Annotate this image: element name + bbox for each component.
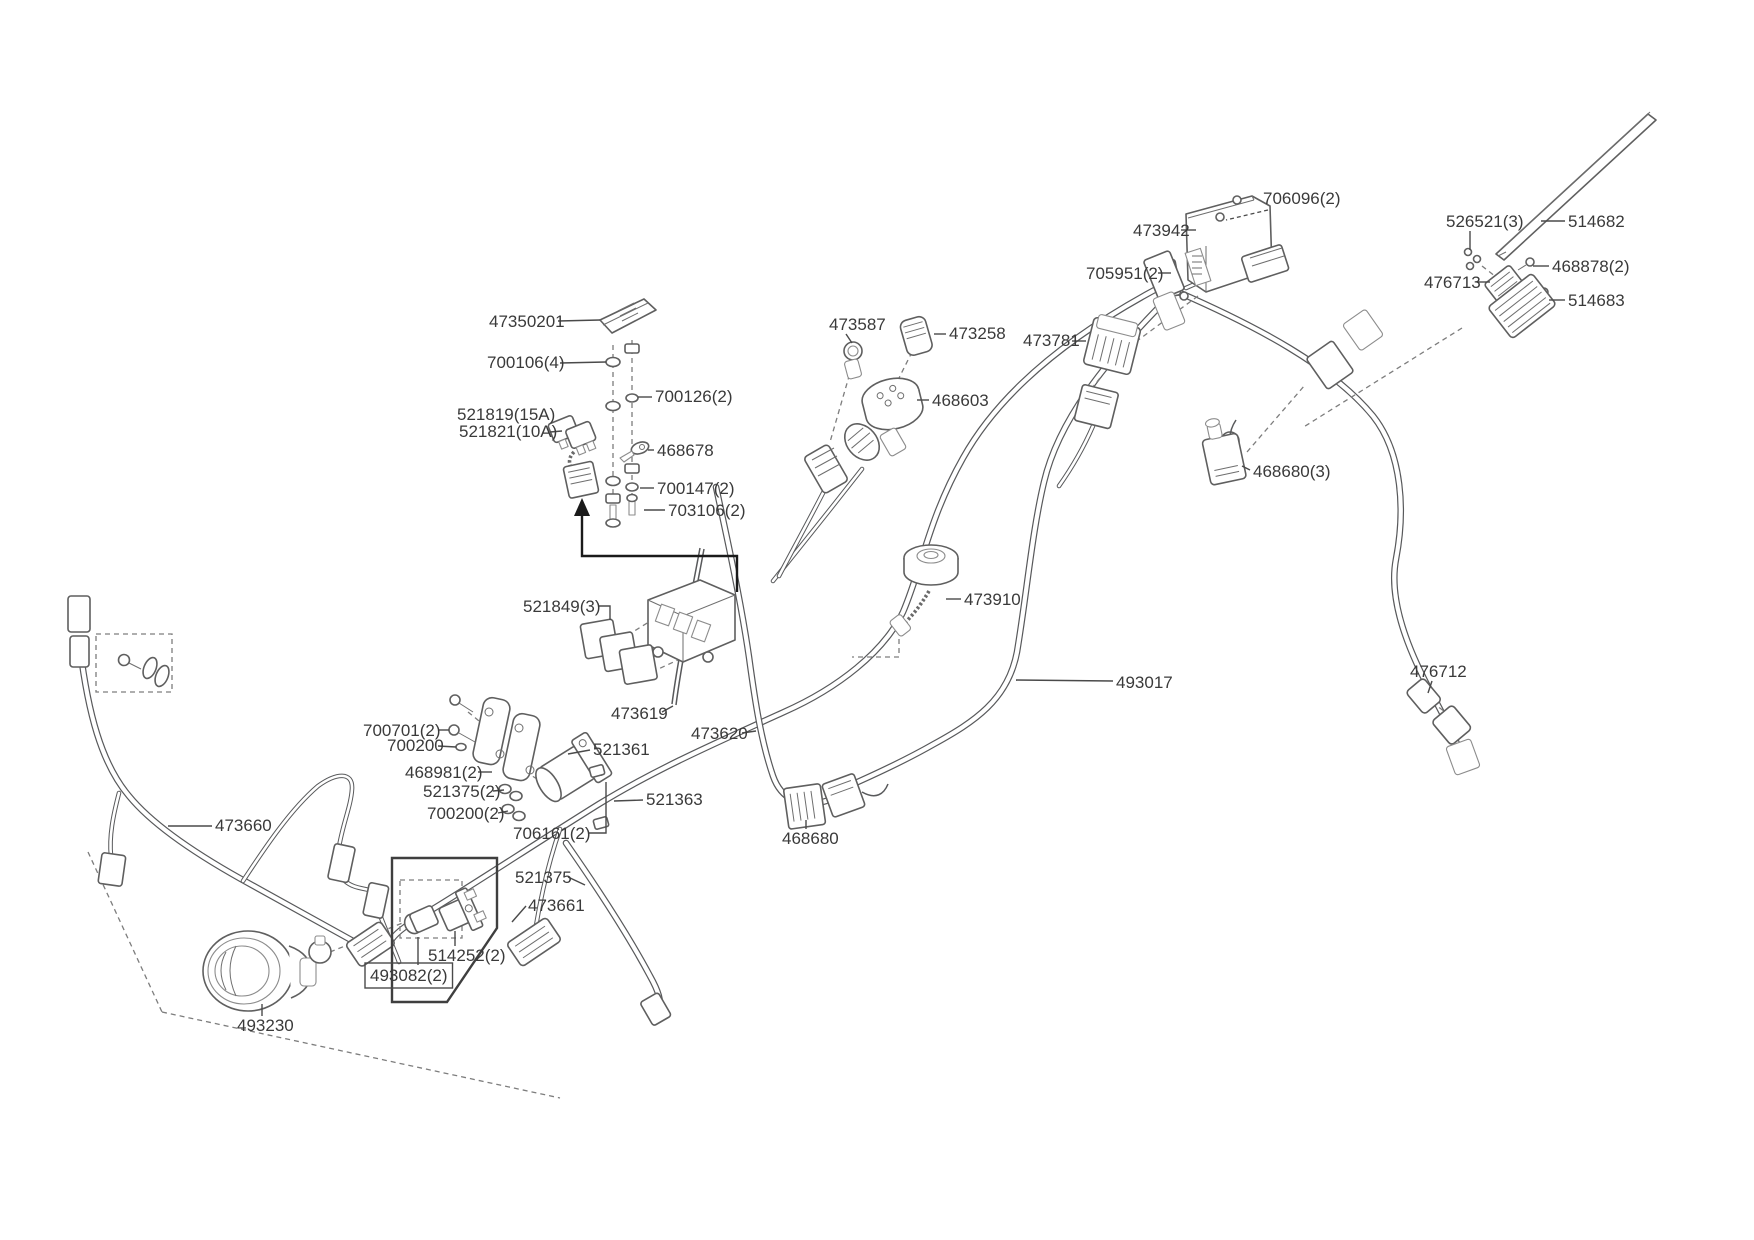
part-label-476713: 476713 (1424, 273, 1481, 292)
switch-cap-47350201 (600, 299, 656, 333)
part-label-476712: 476712 (1410, 662, 1467, 681)
leader-521363 (614, 800, 643, 801)
part-label-47350201: 47350201 (489, 312, 565, 331)
part-label-700106(4): 700106(4) (487, 353, 565, 372)
part-label-514682: 514682 (1568, 212, 1625, 231)
part-label-700200(2): 700200(2) (427, 804, 505, 823)
screws-526521 (1465, 249, 1481, 270)
part-label-468680: 468680 (782, 829, 839, 848)
part-label-473910: 473910 (964, 590, 1021, 609)
sensor-473910 (889, 545, 958, 637)
part-label-703106(2): 703106(2) (668, 501, 746, 520)
part-label-705951(2): 705951(2) (1086, 264, 1164, 283)
part-label-493017: 493017 (1116, 673, 1173, 692)
components (68, 112, 1656, 1026)
part-label-700147(2): 700147(2) (657, 479, 735, 498)
part-label-473942: 473942 (1133, 221, 1190, 240)
part-labels: 47350201700106(4)700126(2)521819(15A)521… (168, 189, 1630, 1035)
relay-block-521849 (580, 580, 735, 691)
button-473587 (803, 342, 862, 494)
connector-pair-476712 (1406, 678, 1481, 776)
part-label-706096(2): 706096(2) (1263, 189, 1341, 208)
part-label-521361: 521361 (593, 740, 650, 759)
part-label-468603: 468603 (932, 391, 989, 410)
part-label-473258: 473258 (949, 324, 1006, 343)
part-label-521375(2): 521375(2) (423, 782, 501, 801)
junction-connectors (1143, 244, 1383, 467)
switch-468680-3 (1198, 414, 1247, 485)
part-label-706161(2): 706161(2) (513, 824, 591, 843)
part-label-473587: 473587 (829, 315, 886, 334)
part-label-493230: 493230 (237, 1016, 294, 1035)
part-label-521849(3): 521849(3) (523, 597, 601, 616)
left-harness-parts (68, 596, 672, 1026)
leader-473587 (846, 334, 852, 343)
part-label-473620: 473620 (691, 724, 748, 743)
part-label-700200: 700200 (387, 736, 444, 755)
harness-wire-bundles (80, 268, 1459, 1009)
part-label-468981(2): 468981(2) (405, 763, 483, 782)
leader-473661 (512, 906, 526, 922)
part-label-521375: 521375 (515, 868, 572, 887)
part-label-526521(3): 526521(3) (1446, 212, 1524, 231)
part-label-473781: 473781 (1023, 331, 1080, 350)
part-label-468680(3): 468680(3) (1253, 462, 1331, 481)
parts-diagram-canvas: 47350201700106(4)700126(2)521819(15A)521… (0, 0, 1754, 1240)
relay-pair-468680 (783, 773, 888, 829)
antenna-bar-514682 (1496, 112, 1656, 260)
part-label-468878(2): 468878(2) (1552, 257, 1630, 276)
part-label-514683: 514683 (1568, 291, 1625, 310)
part-label-468678: 468678 (657, 441, 714, 460)
part-label-473661: 473661 (528, 896, 585, 915)
part-label-473660: 473660 (215, 816, 272, 835)
part-label-521821(10A): 521821(10A) (459, 422, 557, 441)
leader-493017 (1016, 680, 1113, 681)
parts-diagram-page: 47350201700106(4)700126(2)521819(15A)521… (0, 0, 1754, 1240)
part-label-521363: 521363 (646, 790, 703, 809)
leader-700106(4) (560, 362, 606, 363)
part-label-473619: 473619 (611, 704, 668, 723)
part-label-493082(2): 493082(2) (370, 966, 448, 985)
part-label-514252(2): 514252(2) (428, 946, 506, 965)
part-label-700126(2): 700126(2) (655, 387, 733, 406)
